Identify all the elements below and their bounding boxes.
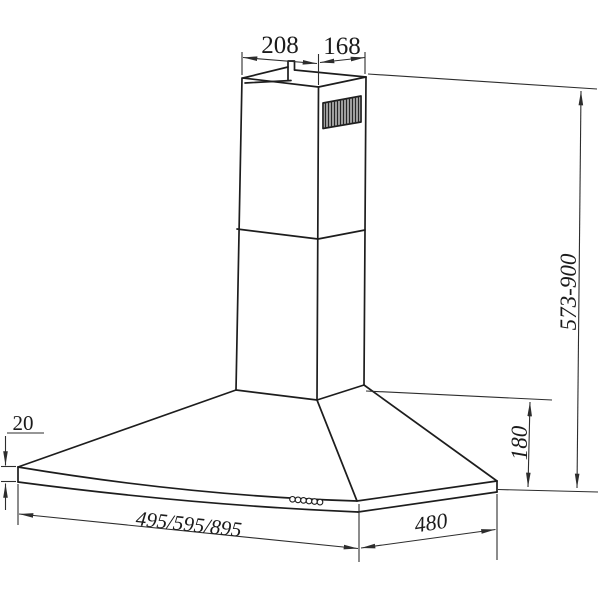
dim-label-canopy-height: 180 (507, 425, 532, 460)
telescopic-seam-line (237, 229, 365, 239)
dim-label-body-width: 495/595/895 (135, 506, 243, 542)
hood-dimension-drawing: 208 168 20 573-900 180 495/595/895 480 (0, 0, 600, 600)
canopy-pyramid (18, 385, 497, 501)
dim-label-rim-height: 20 (13, 411, 34, 435)
dim-label-overall-height: 573-900 (556, 253, 581, 330)
rim-right-top-edge (357, 481, 497, 501)
mounting-flange-top-edge (243, 67, 288, 78)
chimney-right-edge (364, 77, 366, 385)
mounting-tab (288, 61, 295, 80)
dim-label-chimney-depth: 168 (323, 33, 361, 60)
dim-label-body-depth: 480 (413, 508, 449, 538)
canopy-front-corner-edge (317, 400, 357, 501)
canopy-left-slope-edge (18, 390, 236, 467)
chimney-front-corner-edge (317, 87, 319, 400)
rim-front-top-edge (18, 467, 357, 501)
ext-line-bottom-right (498, 490, 598, 493)
chimney-top-back-edge (295, 70, 367, 77)
dim-label-chimney-width: 208 (261, 32, 299, 59)
ext-line-canopy-top (366, 391, 552, 400)
vent-grille (323, 96, 361, 129)
dimension-lines (1, 52, 598, 562)
drawing-canvas: 208 168 20 573-900 180 495/595/895 480 (0, 0, 600, 600)
canopy-right-slope-edge (364, 385, 497, 481)
chimney-left-edge (236, 78, 242, 390)
dimension-labels: 208 168 20 573-900 180 495/595/895 480 (13, 32, 582, 542)
ext-line-top-right (368, 74, 597, 89)
rim-front-bottom-edge (18, 482, 358, 512)
canopy-rim-band (18, 467, 497, 512)
control-buttons (290, 497, 323, 505)
canopy-top-edges (236, 385, 364, 400)
rim-right-bottom-edge (358, 492, 497, 512)
